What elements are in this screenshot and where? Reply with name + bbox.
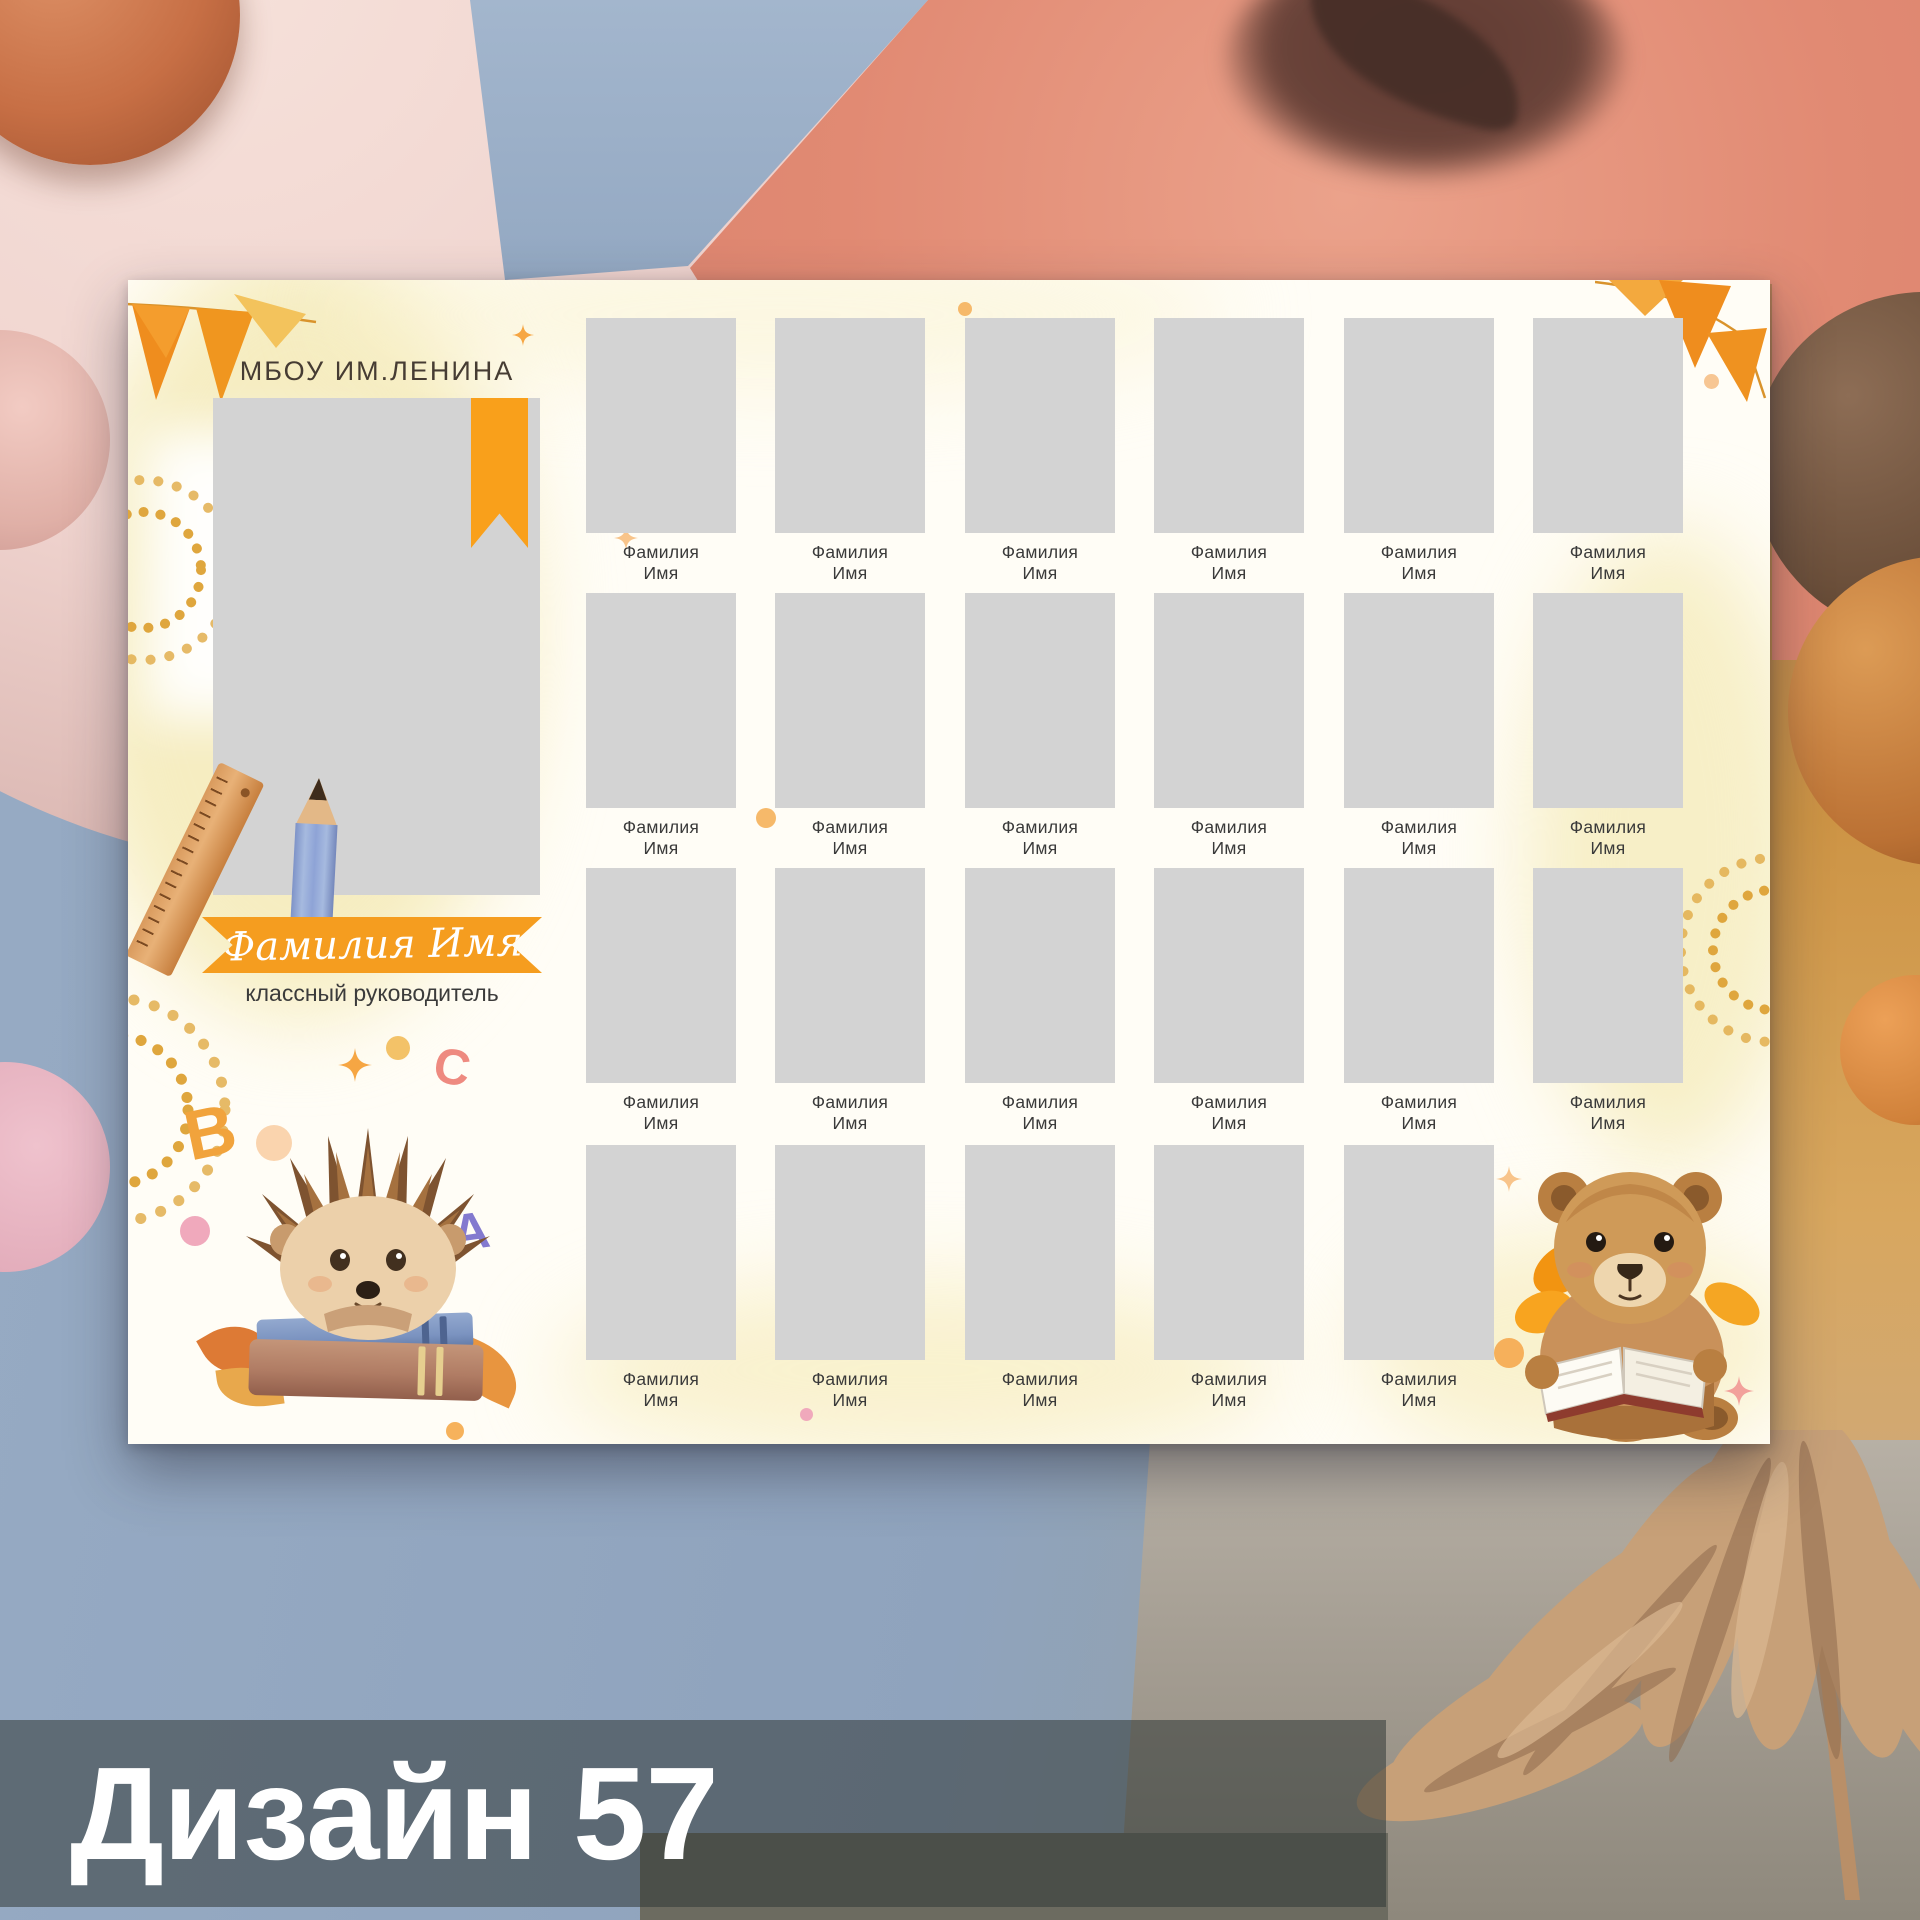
student-photo-slot <box>1344 868 1494 1083</box>
student-surname: Фамилия <box>945 817 1135 838</box>
student-photo-slot <box>965 1145 1115 1360</box>
student-photo-slot <box>1154 1145 1304 1360</box>
student-caption: ФамилияИмя <box>1324 1092 1514 1134</box>
design-label: Дизайн 57 <box>0 1748 718 1880</box>
student-photo-slot <box>1533 318 1683 533</box>
design-label-bar: Дизайн 57 <box>0 1720 1386 1907</box>
student-name: Имя <box>945 563 1135 584</box>
student-photo-slot <box>775 593 925 808</box>
student-surname: Фамилия <box>566 1092 756 1113</box>
student-name: Имя <box>1324 838 1514 859</box>
student-name: Имя <box>755 563 945 584</box>
dried-plant-icon <box>1340 1430 1920 1920</box>
student-photo-slot <box>1154 593 1304 808</box>
student-photo-slot <box>775 318 925 533</box>
student-photo-slot <box>1533 868 1683 1083</box>
student-surname: Фамилия <box>1134 1369 1324 1390</box>
student-caption: ФамилияИмя <box>566 1369 756 1411</box>
student-surname: Фамилия <box>566 1369 756 1390</box>
student-surname: Фамилия <box>1134 542 1324 563</box>
student-caption: ФамилияИмя <box>945 1092 1135 1134</box>
student-caption: ФамилияИмя <box>945 817 1135 859</box>
class-photo-poster: МБОУ ИМ.ЛЕНИНА Фамилия Имя классный руко… <box>128 280 1770 1444</box>
student-name: Имя <box>566 1390 756 1411</box>
student-name: Имя <box>1513 1113 1703 1134</box>
student-surname: Фамилия <box>945 1369 1135 1390</box>
student-photo-slot <box>586 593 736 808</box>
student-surname: Фамилия <box>755 817 945 838</box>
student-name: Имя <box>1134 563 1324 584</box>
student-caption: ФамилияИмя <box>1513 542 1703 584</box>
student-caption: ФамилияИмя <box>755 817 945 859</box>
student-name: Имя <box>1513 838 1703 859</box>
student-surname: Фамилия <box>1324 1092 1514 1113</box>
student-caption: ФамилияИмя <box>755 1369 945 1411</box>
student-name: Имя <box>945 1113 1135 1134</box>
student-photo-slot <box>775 868 925 1083</box>
student-caption: ФамилияИмя <box>566 817 756 859</box>
student-photo-slot <box>965 318 1115 533</box>
student-photo-slot <box>775 1145 925 1360</box>
student-surname: Фамилия <box>1134 1092 1324 1113</box>
student-name: Имя <box>566 563 756 584</box>
student-caption: ФамилияИмя <box>755 542 945 584</box>
student-surname: Фамилия <box>1513 542 1703 563</box>
student-photo-slot <box>586 868 736 1083</box>
student-caption: ФамилияИмя <box>755 1092 945 1134</box>
student-caption: ФамилияИмя <box>1324 542 1514 584</box>
student-caption: ФамилияИмя <box>1513 817 1703 859</box>
student-name: Имя <box>1134 1113 1324 1134</box>
student-surname: Фамилия <box>755 542 945 563</box>
student-surname: Фамилия <box>1324 817 1514 838</box>
student-name: Имя <box>945 838 1135 859</box>
student-photo-slot <box>586 1145 736 1360</box>
student-photo-slot <box>1154 868 1304 1083</box>
student-name: Имя <box>755 1390 945 1411</box>
bear-illustration <box>1480 1136 1760 1444</box>
student-name: Имя <box>1513 563 1703 584</box>
student-surname: Фамилия <box>1324 542 1514 563</box>
student-name: Имя <box>566 1113 756 1134</box>
student-name: Имя <box>945 1390 1135 1411</box>
student-name: Имя <box>566 838 756 859</box>
student-caption: ФамилияИмя <box>1134 817 1324 859</box>
student-surname: Фамилия <box>566 542 756 563</box>
student-surname: Фамилия <box>755 1092 945 1113</box>
student-caption: ФамилияИмя <box>1513 1092 1703 1134</box>
student-caption: ФамилияИмя <box>1134 1369 1324 1411</box>
student-caption: ФамилияИмя <box>566 542 756 584</box>
student-surname: Фамилия <box>1513 1092 1703 1113</box>
student-caption: ФамилияИмя <box>1324 817 1514 859</box>
student-name: Имя <box>1134 838 1324 859</box>
student-photo-slot <box>1344 593 1494 808</box>
student-photo-slot <box>965 593 1115 808</box>
student-surname: Фамилия <box>945 542 1135 563</box>
student-name: Имя <box>1324 563 1514 584</box>
student-name: Имя <box>1324 1113 1514 1134</box>
student-photo-slot <box>965 868 1115 1083</box>
student-caption: ФамилияИмя <box>945 1369 1135 1411</box>
student-name: Имя <box>1134 1390 1324 1411</box>
student-photo-slot <box>1344 1145 1494 1360</box>
student-surname: Фамилия <box>1513 817 1703 838</box>
mockup-scene: МБОУ ИМ.ЛЕНИНА Фамилия Имя классный руко… <box>0 0 1920 1920</box>
student-caption: ФамилияИмя <box>945 542 1135 584</box>
student-caption: ФамилияИмя <box>566 1092 756 1134</box>
student-surname: Фамилия <box>755 1369 945 1390</box>
student-caption: ФамилияИмя <box>1134 1092 1324 1134</box>
student-name: Имя <box>755 1113 945 1134</box>
student-photo-slot <box>1154 318 1304 533</box>
student-caption: ФамилияИмя <box>1134 542 1324 584</box>
student-surname: Фамилия <box>1134 817 1324 838</box>
student-photo-slot <box>586 318 736 533</box>
student-surname: Фамилия <box>566 817 756 838</box>
student-photo-slot <box>1533 593 1683 808</box>
student-name: Имя <box>755 838 945 859</box>
student-surname: Фамилия <box>945 1092 1135 1113</box>
student-photo-slot <box>1344 318 1494 533</box>
